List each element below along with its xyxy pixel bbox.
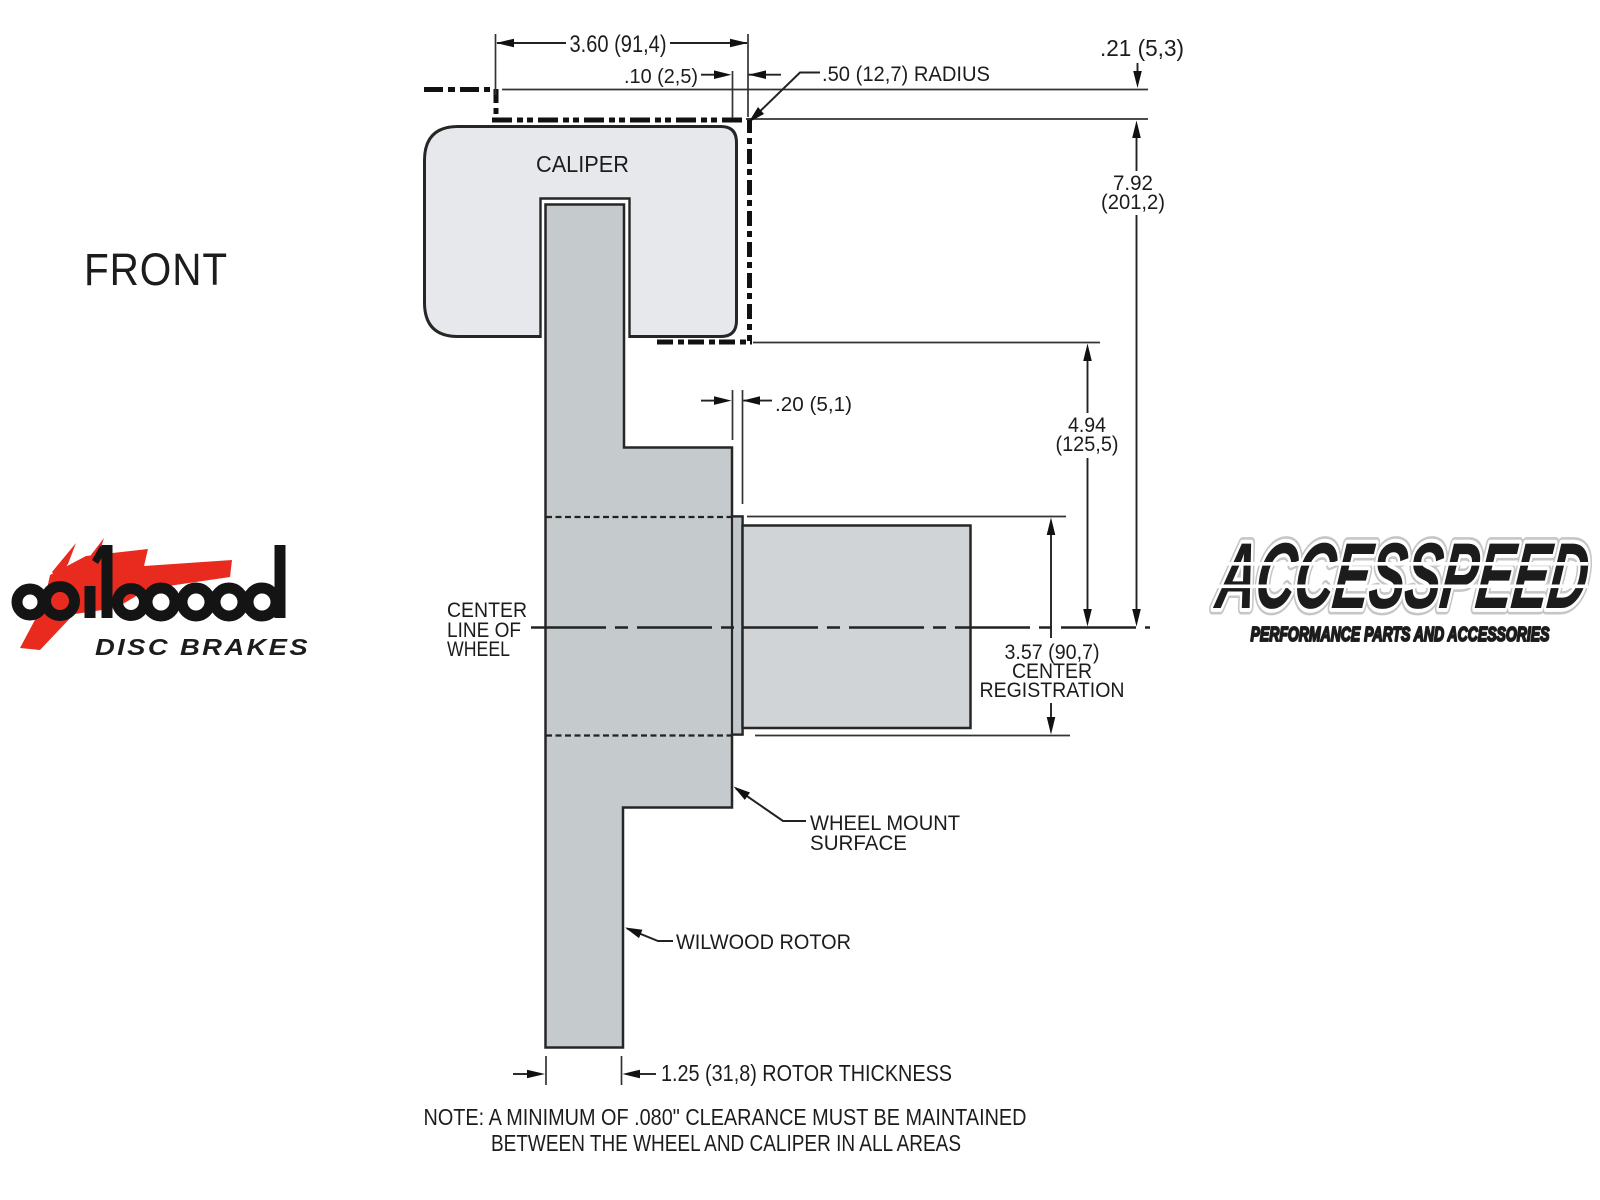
svg-text:BETWEEN THE WHEEL AND CALIPER: BETWEEN THE WHEEL AND CALIPER IN ALL ARE… [491, 1130, 961, 1156]
svg-text:WHEEL: WHEEL [447, 637, 510, 661]
svg-text:3.60 (91,4): 3.60 (91,4) [570, 31, 667, 58]
svg-text:REGISTRATION: REGISTRATION [980, 679, 1125, 702]
svg-text:.10 (2,5): .10 (2,5) [624, 66, 698, 88]
svg-text:SURFACE: SURFACE [810, 831, 907, 855]
svg-text:.21 (5,3): .21 (5,3) [1100, 35, 1184, 61]
svg-text:1.25 (31,8) ROTOR THICKNESS: 1.25 (31,8) ROTOR THICKNESS [661, 1060, 952, 1086]
svg-text:FRONT: FRONT [84, 244, 228, 295]
svg-text:(201,2): (201,2) [1101, 190, 1165, 214]
svg-text:CALIPER: CALIPER [536, 151, 629, 177]
svg-text:ACCESSPEED: ACCESSPEED [1210, 523, 1594, 628]
svg-text:DISC BRAKES: DISC BRAKES [95, 634, 310, 660]
svg-text:.20 (5,1): .20 (5,1) [775, 393, 852, 416]
svg-text:NOTE: A MINIMUM OF .080" CLEAR: NOTE: A MINIMUM OF .080" CLEARANCE MUST … [424, 1104, 1027, 1130]
svg-text:PERFORMANCE PARTS AND ACCESSOR: PERFORMANCE PARTS AND ACCESSORIES [1251, 623, 1550, 646]
svg-text:WILWOOD ROTOR: WILWOOD ROTOR [676, 930, 851, 954]
svg-text:(125,5): (125,5) [1056, 432, 1119, 456]
svg-text:.50 (12,7) RADIUS: .50 (12,7) RADIUS [822, 63, 990, 86]
